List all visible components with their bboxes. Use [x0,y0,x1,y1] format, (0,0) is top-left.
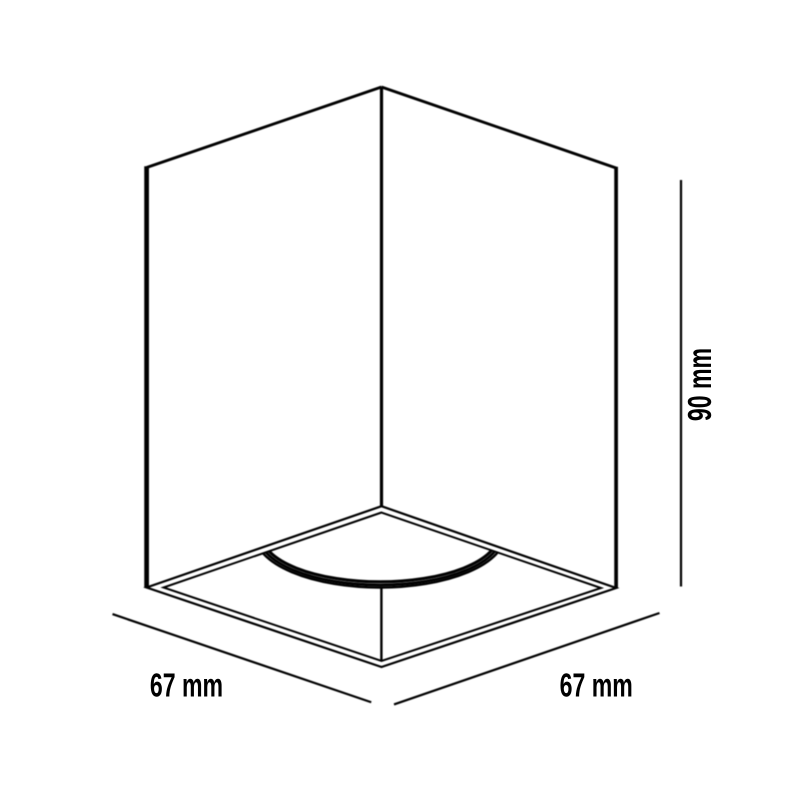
svg-text:90 mm: 90 mm [682,348,719,421]
svg-text:67 mm: 67 mm [150,667,223,704]
svg-text:67 mm: 67 mm [560,667,633,704]
